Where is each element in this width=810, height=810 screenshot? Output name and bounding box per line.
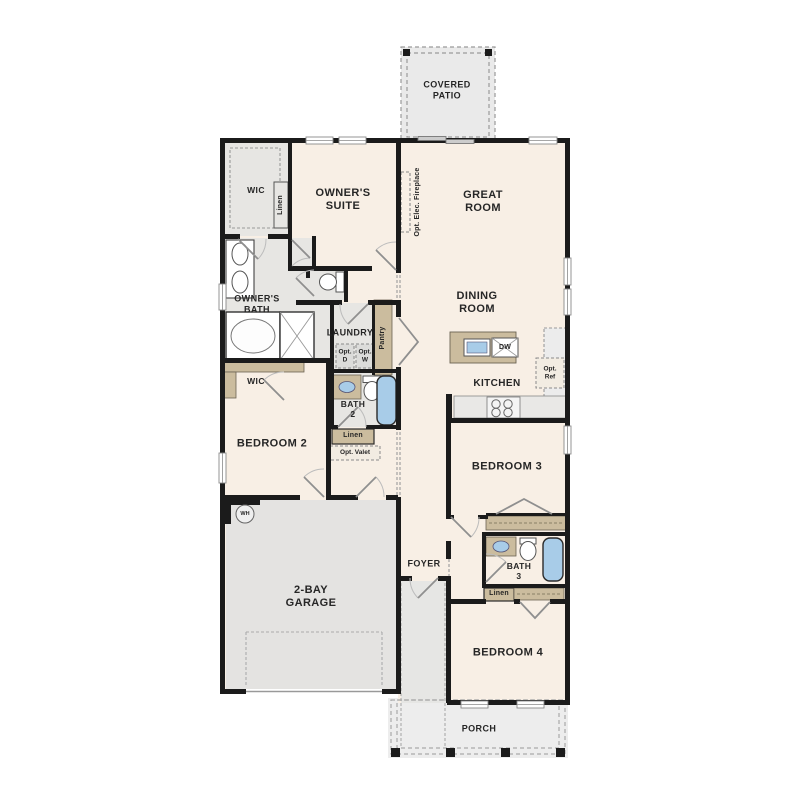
label-opt-washer: Opt. W bbox=[359, 348, 372, 363]
patio-slider-door bbox=[446, 140, 474, 144]
label-laundry: LAUNDRY bbox=[327, 328, 373, 339]
label-pantry: Pantry bbox=[379, 327, 387, 350]
label-linen-wic: Linen bbox=[277, 195, 285, 215]
label-owners-bath: OWNER'S BATH bbox=[234, 293, 279, 314]
bath2-tub bbox=[377, 376, 396, 425]
label-bath2: BATH 2 bbox=[341, 399, 366, 419]
patio-post bbox=[485, 49, 492, 56]
label-bedroom4: BEDROOM 4 bbox=[473, 647, 543, 660]
label-linen-bath3: Linen bbox=[489, 590, 509, 598]
bath3-tub bbox=[543, 538, 563, 581]
label-dishwasher: DW bbox=[499, 344, 511, 352]
entry-hall-floor bbox=[401, 581, 446, 703]
label-foyer: FOYER bbox=[407, 559, 440, 570]
label-owners-suite: OWNER'S SUITE bbox=[316, 187, 371, 213]
label-porch: PORCH bbox=[462, 724, 497, 735]
label-wic-bed2: WIC bbox=[247, 376, 265, 386]
label-fireplace: Opt. Elec. Fireplace bbox=[414, 168, 422, 237]
label-opt-valet: Opt. Valet bbox=[340, 449, 370, 457]
label-great-room: GREAT ROOM bbox=[463, 189, 503, 215]
label-wic-owner: WIC bbox=[247, 185, 265, 195]
label-covered-patio: COVERED PATIO bbox=[423, 79, 470, 100]
label-bath3: BATH 3 bbox=[507, 561, 532, 581]
patio-post bbox=[403, 49, 410, 56]
floor-plan: COVERED PATIO OWNER'S SUITE GREAT ROOM D… bbox=[0, 0, 810, 810]
label-garage: 2-BAY GARAGE bbox=[286, 584, 337, 610]
label-opt-dryer: Opt. D bbox=[339, 348, 352, 363]
label-water-heater: WH bbox=[240, 511, 249, 517]
floor-plan-drawing bbox=[0, 0, 810, 810]
wic2-shelf-side bbox=[224, 372, 236, 398]
label-kitchen: KITCHEN bbox=[473, 378, 520, 390]
bath2-sink bbox=[339, 382, 355, 393]
label-bedroom3: BEDROOM 3 bbox=[472, 461, 542, 474]
owners-toilet bbox=[336, 272, 344, 292]
patio-slider-door bbox=[418, 137, 446, 141]
label-linen-bath2: Linen bbox=[343, 432, 363, 440]
label-bedroom2: BEDROOM 2 bbox=[237, 438, 307, 451]
bath3-sink bbox=[493, 541, 509, 552]
label-dining-room: DINING ROOM bbox=[457, 290, 498, 316]
label-opt-ref: Opt. Ref bbox=[544, 365, 557, 380]
